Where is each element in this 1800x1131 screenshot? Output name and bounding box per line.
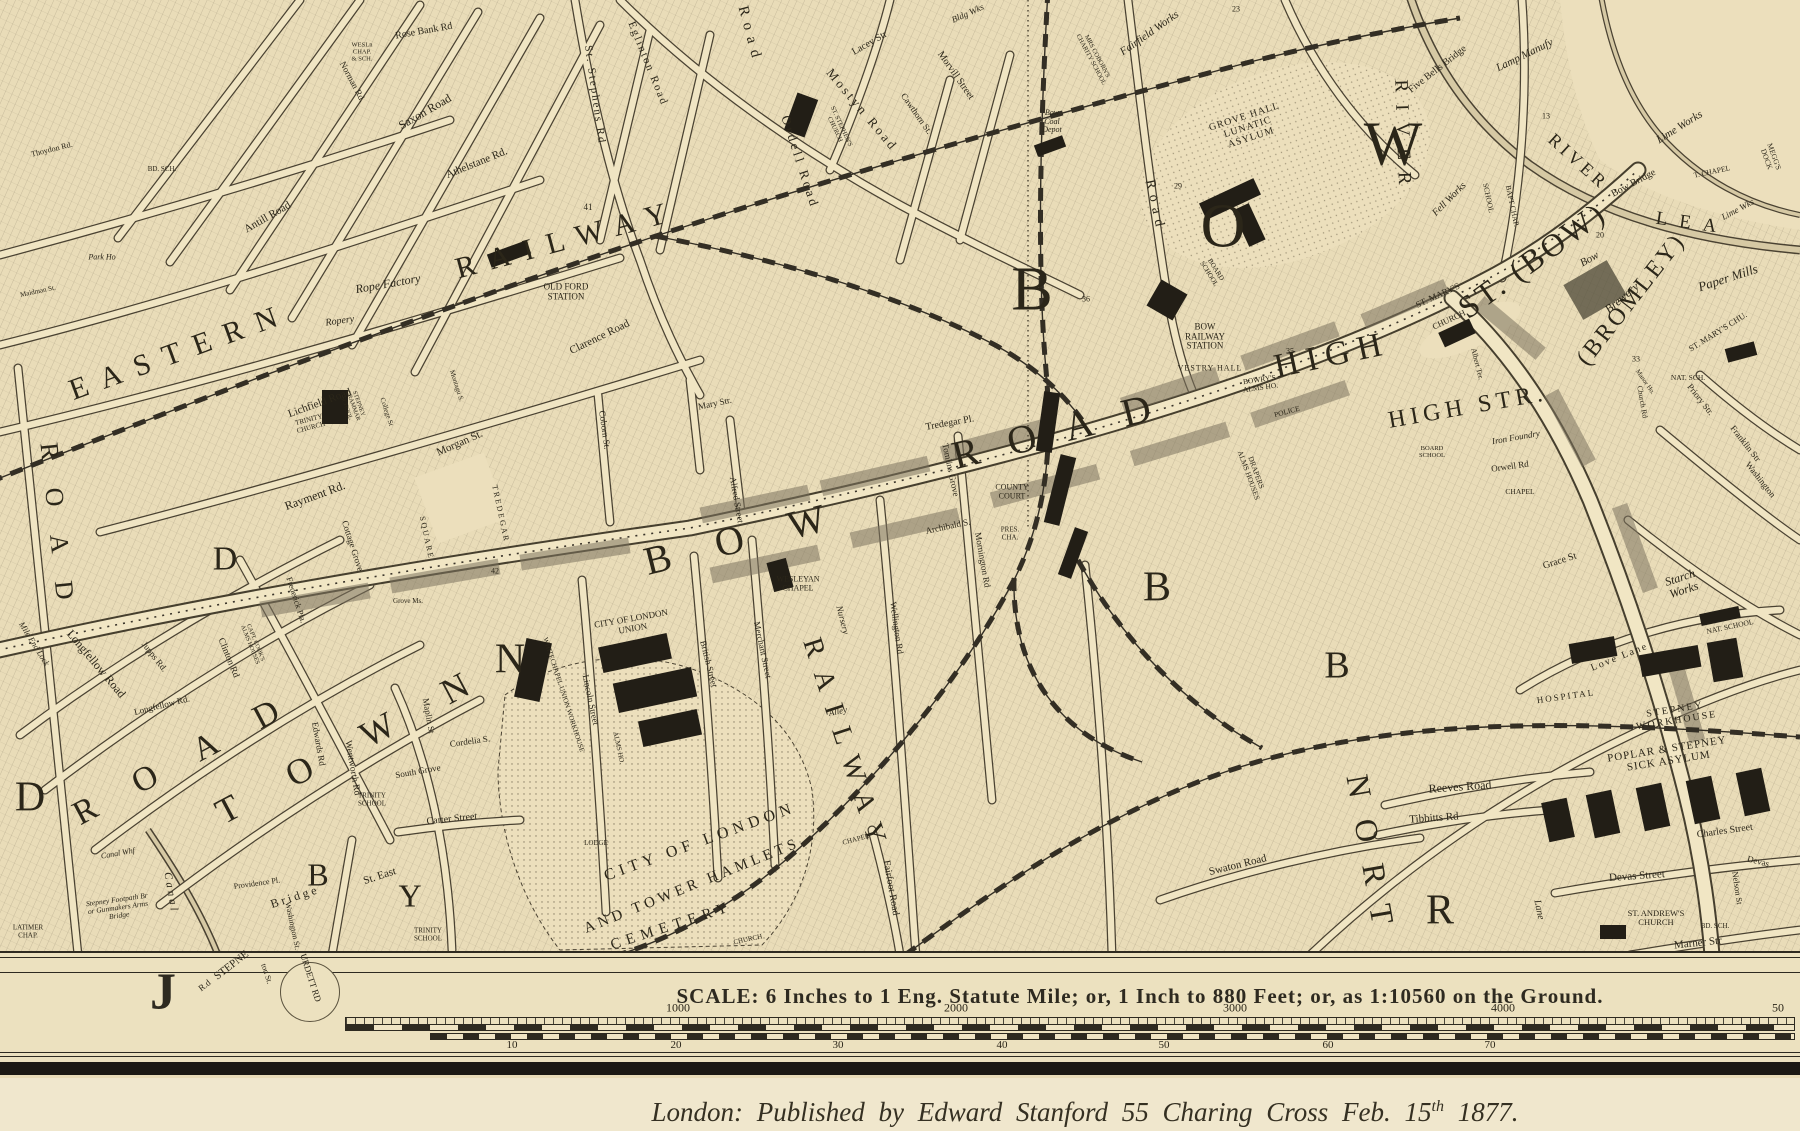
map-label: TREDEGAR — [490, 484, 511, 543]
map-label: Park Ho — [88, 254, 115, 263]
map-label: 35 — [1286, 348, 1294, 357]
map-label: VESTRY HALL — [1178, 365, 1243, 374]
map-label: Fairfoot Road — [880, 860, 900, 917]
map-sheet: J SCALE: 6 Inches to 1 Eng. Statute Mile… — [0, 0, 1800, 1131]
map-label: Road — [734, 4, 765, 66]
map-label: BOW — [640, 485, 875, 583]
map-label: CITY OF LONDON — [602, 799, 798, 885]
map-label: Road — [1142, 178, 1168, 234]
map-label: Clarence Road — [568, 318, 632, 357]
map-label: Fairfield Works — [1118, 9, 1181, 58]
map-label: 36 — [1082, 296, 1090, 305]
scale-feet-number: 4000 — [1491, 1002, 1515, 1015]
map-label: Bow — [1579, 250, 1602, 270]
map-label: Grove Ms. — [393, 598, 423, 606]
map-label: Saxon Road — [396, 92, 453, 132]
map-label: Charles Street — [1696, 823, 1753, 842]
map-label: Jupps Rd. — [139, 640, 169, 674]
map-label: College St — [378, 397, 394, 427]
map-label: TRINITY SCHOOL — [358, 792, 386, 807]
map-label: ALMS HO. — [611, 731, 625, 765]
map-label: Mornington Rd — [972, 532, 991, 589]
map-label: BOWRY'S ALMS HO. — [1241, 374, 1278, 395]
map-label: Fell Works — [1431, 181, 1469, 219]
map-label: Iron Foundry — [1491, 429, 1540, 447]
map-label: Bldg Wks — [950, 3, 985, 26]
map-label: Cawthorn St. — [898, 92, 933, 136]
map-label: Canal Whf — [100, 847, 135, 861]
map-label: Frederick Pla. — [284, 576, 307, 624]
map-label: Lime Wks — [1720, 197, 1756, 222]
map-label: Coborn St. — [596, 410, 611, 450]
map-label: ton St. — [259, 963, 274, 986]
map-label: LODGE — [584, 840, 608, 848]
map-label: ROAD — [948, 379, 1185, 477]
map-label: B — [1324, 645, 1349, 686]
map-label: R.d — [197, 978, 213, 994]
map-label: 29 — [1174, 183, 1182, 192]
map-label: 42 — [491, 568, 499, 577]
map-label: Tibbitts Rd — [1409, 811, 1459, 826]
map-label: BOARD SCHOOL — [1198, 256, 1226, 288]
map-label: Reeves Road — [1428, 778, 1492, 795]
map-label: Maidman St. — [20, 285, 57, 300]
map-label: Nursery — [834, 605, 850, 635]
scale-chain-number: 40 — [997, 1040, 1008, 1052]
map-label: (BROMLEY) — [1572, 229, 1691, 371]
map-label: NAT. SCHOOL — [1706, 618, 1754, 636]
map-label: RAILWAY — [796, 634, 896, 862]
map-label: NAT. SCH. — [1671, 374, 1705, 382]
map-label: Devas — [1746, 855, 1770, 870]
map-labels-layer: EASTERNRAILWAYBOWROADHIGHST. (BOW)HIGH S… — [0, 0, 1800, 1131]
map-label: Rayment Rd. — [283, 479, 347, 513]
map-label: Longfellow Road — [64, 628, 128, 701]
map-label: ST. ANDREW'S CHURCH — [1628, 909, 1685, 927]
map-label: ROAD — [34, 441, 81, 629]
map-label: St. East — [362, 866, 398, 888]
map-label: Antill Road — [243, 200, 294, 236]
map-label: POPLAR & STEPNEY SICK ASYLUM — [1601, 734, 1735, 778]
map-label: Morvill Street — [934, 50, 975, 102]
map-label: Nelson St — [1730, 871, 1744, 905]
map-label: Five Bells Bridge — [1407, 44, 1469, 96]
map-label: ST. STEPHEN'S CHURCH — [822, 105, 853, 151]
map-label: Longfellow Rd. — [133, 694, 191, 717]
map-label: T. CHAPEL — [1693, 164, 1731, 180]
map-label: CHURCH — [733, 933, 763, 946]
map-label: D — [15, 775, 45, 820]
map-label: B — [1011, 257, 1052, 324]
map-label: 33 — [1632, 356, 1640, 365]
map-label: POLICE — [1273, 405, 1300, 420]
map-label: Mile End Lock — [17, 620, 51, 667]
map-label: Marner Str — [1674, 936, 1723, 953]
map-label: Rose Bank Rd — [395, 22, 454, 43]
map-label: Cottage Grove — [339, 519, 365, 572]
map-label: Priory Str. — [1685, 382, 1715, 417]
scale-feet-number: 1000 — [666, 1002, 690, 1015]
map-label: British Street — [698, 640, 719, 689]
map-label: Merchant Street — [751, 621, 773, 679]
map-label: BOARD SCHOOL — [1419, 445, 1445, 459]
map-label: STEPNE — [212, 949, 251, 983]
map-label: Paper Mills — [1696, 262, 1759, 294]
map-label: Archibald S. — [925, 518, 972, 537]
map-label: NORT — [1340, 772, 1404, 949]
map-label: Lacey Str — [851, 30, 890, 59]
scale-chain-number: 10 — [507, 1040, 518, 1052]
map-label: Canal — [161, 871, 180, 914]
map-label: N — [495, 637, 525, 682]
map-label: Ordell Road — [778, 114, 821, 210]
map-label: STEPNEY WORKHOUSE — [1613, 696, 1739, 737]
map-label: Devas Street — [1609, 869, 1666, 885]
map-label: Washington — [1743, 460, 1777, 500]
map-label: Wellington Rd — [888, 601, 905, 654]
map-label: Franklin Str — [1728, 424, 1762, 464]
map-label: Y — [398, 879, 421, 914]
map-label: B — [1143, 565, 1171, 610]
map-label: Carter Street — [426, 812, 478, 828]
map-label: Bow Coal Depot — [1042, 109, 1062, 135]
scale-feet-number: 2000 — [944, 1002, 968, 1015]
map-label: MRS COBORN'S CHARITY SCHOOL — [1075, 30, 1114, 86]
map-label: Lane — [1531, 899, 1546, 921]
map-label: URDETT RD — [298, 953, 323, 1004]
map-label: CITY OF LONDON UNION — [594, 608, 671, 640]
map-label: St. Stephens Rd — [581, 45, 607, 146]
map-label: WESLn CHAP. & SCH. — [352, 41, 373, 62]
map-label: South Grove — [395, 763, 442, 781]
map-label: Morgan St. — [435, 429, 485, 460]
map-label: COUNTY COURT — [995, 483, 1028, 500]
map-label: Providence Pl. — [233, 876, 280, 891]
map-label: DRAPERS ALMS HOUSES — [1236, 447, 1269, 501]
map-label: 23 — [1232, 6, 1240, 15]
map-label: Mary Str. — [697, 396, 732, 413]
scale-chain-number: 70 — [1485, 1040, 1496, 1052]
map-label: RIVER — [1390, 79, 1415, 197]
map-label: SQUARE — [417, 516, 435, 561]
map-label: Ropery — [325, 315, 355, 330]
map-label: CHAPEL — [1505, 488, 1534, 496]
map-label: Stepney Footpath Br or Gunmakers Arms Br… — [86, 892, 151, 925]
scale-chain-number: 60 — [1323, 1040, 1334, 1052]
map-label: 41 — [584, 203, 593, 213]
map-label: 13 — [1542, 113, 1550, 122]
map-label: OLD FORD STATION — [544, 282, 589, 301]
map-label: Lime Works — [1655, 109, 1705, 147]
map-label: BOW RAILWAY STATION — [1185, 322, 1225, 351]
map-label: Orwell Rd — [1491, 460, 1530, 475]
map-label: Swaton Road — [1208, 853, 1268, 879]
map-label: MEGG'S DOCK — [1758, 142, 1783, 173]
map-label: Starch Works — [1663, 567, 1700, 601]
map-label: Norman Rd. — [337, 60, 366, 104]
map-label: HIGH STR. — [1386, 381, 1549, 434]
map-label: BAPT CHAP. — [1504, 185, 1521, 228]
scale-feet-number: 50 — [1772, 1002, 1784, 1015]
map-label: GROVE HALL LUNATIC ASYLUM — [1208, 101, 1288, 155]
map-label: Clinton Rd — [215, 637, 240, 680]
map-label: Athelstane Rd. — [444, 146, 509, 182]
scale-chain-number: 50 — [1159, 1040, 1170, 1052]
map-label: CAPT. COOK'S ALMS HOUSES — [238, 622, 266, 665]
scale-chain-number: 20 — [671, 1040, 682, 1052]
map-label: ROAD — [67, 673, 325, 833]
map-label: BD. SCH. — [1701, 923, 1730, 931]
map-label: Thoydon Rd. — [30, 141, 73, 160]
scale-feet-number: 3000 — [1223, 1002, 1247, 1015]
map-label: R — [1426, 888, 1454, 933]
map-label: SCHOOL — [1481, 182, 1495, 213]
map-label: Albert Ter. — [1469, 347, 1485, 380]
map-label: Bow Bridge — [1610, 168, 1658, 200]
map-label: Washington St. — [283, 901, 302, 950]
map-label: Love Lane — [1590, 642, 1651, 675]
map-label: RIVER — [1544, 130, 1612, 194]
map-label: STEPNEY GRAMMAR SCHOOL — [337, 388, 366, 424]
map-label: 20 — [1596, 232, 1604, 241]
map-label: BD. SCH. — [148, 166, 177, 174]
map-label: Eglinton Road — [625, 20, 670, 108]
map-label: HOSPITAL — [1536, 688, 1596, 706]
map-label: Montagu S. — [447, 369, 464, 402]
map-label: D — [213, 542, 238, 579]
map-label: WESLEYAN CHAPEL — [776, 575, 819, 592]
map-label: PRES. CHA. — [1001, 526, 1019, 541]
scale-chain-number: 30 — [833, 1040, 844, 1052]
map-label: WHITECHAPEL UNION WORKHOUSE — [541, 637, 585, 754]
map-label: LATIMER CHAP. — [13, 924, 43, 939]
map-label: Lamp Manufy — [1495, 37, 1555, 75]
map-label: RAILWAY — [452, 194, 684, 285]
map-label: Lincoln Street — [580, 674, 600, 726]
map-label: Cordelia S. — [449, 734, 490, 749]
map-label: EASTERN — [65, 297, 295, 407]
map-label: ST. MARY'S CHU. — [1687, 310, 1749, 353]
map-label: CHURCH — [1431, 308, 1467, 331]
map-label: Grace St — [1542, 552, 1578, 573]
map-label: O — [1201, 194, 1246, 261]
map-label: Bridge — [269, 883, 321, 911]
map-label: Rope Factory — [355, 272, 422, 296]
map-label: TRINITY SCHOOL — [414, 927, 442, 942]
